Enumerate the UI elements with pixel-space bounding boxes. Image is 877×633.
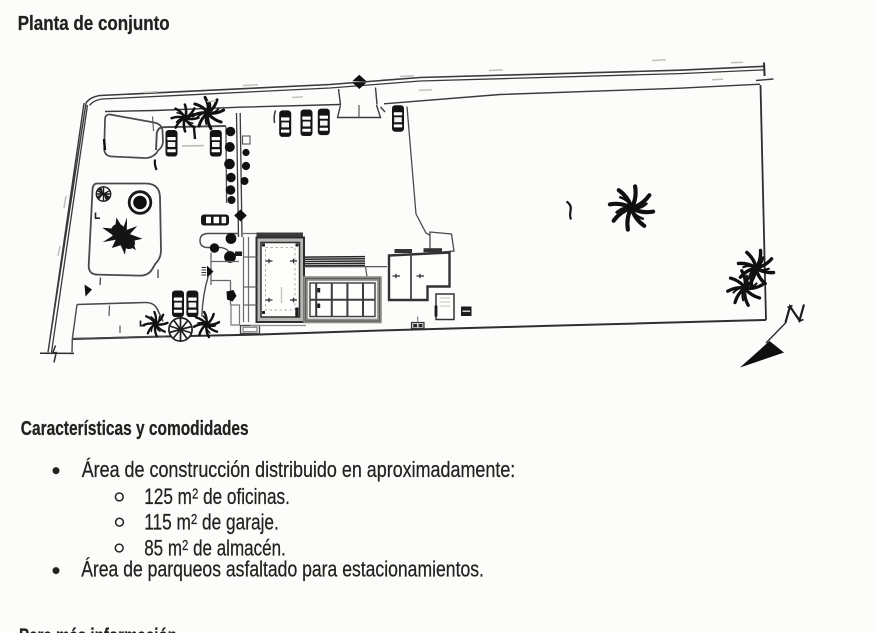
svg-text:Características y comodidades: Características y comodidades [21,417,249,439]
svg-text:Área de parqueos asfaltado par: Área de parqueos asfaltado para estacion… [81,557,484,582]
svg-text:115 m2 de garaje.: 115 m2 de garaje. [144,511,279,535]
svg-text:Para más información: Para más información [19,624,177,633]
svg-text:125 m2 de oficinas.: 125 m2 de oficinas. [144,485,290,509]
svg-text:Área de construcción distribui: Área de construcción distribuido en apro… [82,457,516,482]
svg-text:Planta de conjunto: Planta de conjunto [18,12,170,35]
